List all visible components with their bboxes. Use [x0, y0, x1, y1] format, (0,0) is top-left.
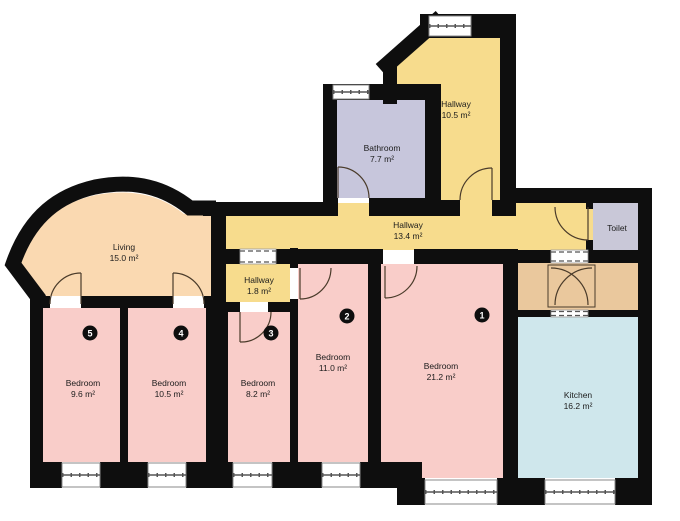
wall [81, 296, 173, 308]
area-kitchen: 16.2 m² [564, 401, 593, 411]
label-toilet: Toilet [607, 223, 627, 233]
badge-bedroom-1: 1 [475, 308, 490, 323]
svg-text:4: 4 [178, 329, 183, 339]
wall [100, 462, 148, 488]
wall [211, 202, 226, 308]
wall [414, 249, 518, 264]
wall [615, 478, 652, 505]
wall [290, 299, 298, 462]
wall [226, 249, 240, 264]
window [62, 463, 100, 487]
svg-text:2: 2 [344, 312, 349, 322]
wall [323, 84, 337, 216]
wall [30, 296, 43, 488]
badge-bedroom-3: 3 [264, 326, 279, 341]
wall [588, 310, 652, 317]
label-kitchen: Kitchen [564, 390, 593, 400]
badge-bedroom-4: 4 [174, 326, 189, 341]
opening [240, 249, 276, 264]
label-hallway-small: Hallway [244, 275, 275, 285]
wall [186, 462, 233, 488]
wall [492, 200, 516, 216]
window [148, 463, 186, 487]
wall [272, 462, 322, 488]
wall [360, 462, 400, 488]
opening [551, 310, 588, 317]
room-bedroom-1 [381, 264, 503, 478]
floor-plan-canvas: Hallway 10.5 m² Bathroom 7.7 m² Hallway … [0, 0, 680, 521]
opening [551, 250, 588, 263]
area-bathroom: 7.7 m² [370, 154, 394, 164]
label-bedroom-2: Bedroom [316, 352, 351, 362]
area-hallway-main: 13.4 m² [394, 231, 423, 241]
label-bedroom-5: Bedroom [66, 378, 101, 388]
floor-plan: Hallway 10.5 m² Bathroom 7.7 m² Hallway … [0, 0, 680, 521]
wall [425, 100, 441, 200]
wall [204, 296, 226, 308]
area-living: 15.0 m² [110, 253, 139, 263]
label-bedroom-3: Bedroom [241, 378, 276, 388]
area-bedroom-5: 9.6 m² [71, 389, 95, 399]
label-living: Living [113, 242, 135, 252]
wall [497, 478, 545, 505]
window [425, 480, 497, 504]
window [322, 463, 360, 487]
wall [268, 302, 298, 312]
area-bedroom-2: 11.0 m² [319, 363, 347, 373]
badge-bedroom-2: 2 [340, 309, 355, 324]
area-bedroom-1: 21.2 m² [427, 372, 456, 382]
wall [638, 188, 652, 505]
label-bedroom-1: Bedroom [424, 361, 459, 371]
wall [290, 248, 298, 268]
label-bathroom: Bathroom [364, 143, 401, 153]
window [545, 480, 615, 504]
label-hallway-upper: Hallway [441, 99, 472, 109]
wall [441, 200, 460, 216]
wall [588, 250, 652, 263]
wall [500, 14, 516, 204]
window [333, 85, 369, 99]
window [233, 463, 272, 487]
wall [206, 308, 228, 462]
wall [369, 198, 441, 216]
wall [368, 264, 381, 478]
wall [420, 478, 425, 505]
wall [226, 302, 240, 312]
svg-text:1: 1 [479, 311, 484, 321]
area-bedroom-3: 8.2 m² [246, 389, 270, 399]
label-bedroom-4: Bedroom [152, 378, 187, 388]
svg-text:5: 5 [87, 329, 92, 339]
badge-bedroom-5: 5 [83, 326, 98, 341]
area-bedroom-4: 10.5 m² [155, 389, 184, 399]
wall [120, 308, 128, 462]
wall [586, 203, 593, 209]
wall [518, 310, 551, 317]
wall [518, 250, 551, 263]
label-hallway-main: Hallway [393, 220, 424, 230]
wall [503, 249, 518, 480]
area-hallway-small: 1.8 m² [247, 286, 271, 296]
window [429, 16, 471, 36]
wall [30, 462, 62, 488]
svg-text:3: 3 [268, 329, 273, 339]
wall [516, 188, 652, 203]
area-hallway-upper: 10.5 m² [442, 110, 471, 120]
wall [397, 462, 422, 505]
